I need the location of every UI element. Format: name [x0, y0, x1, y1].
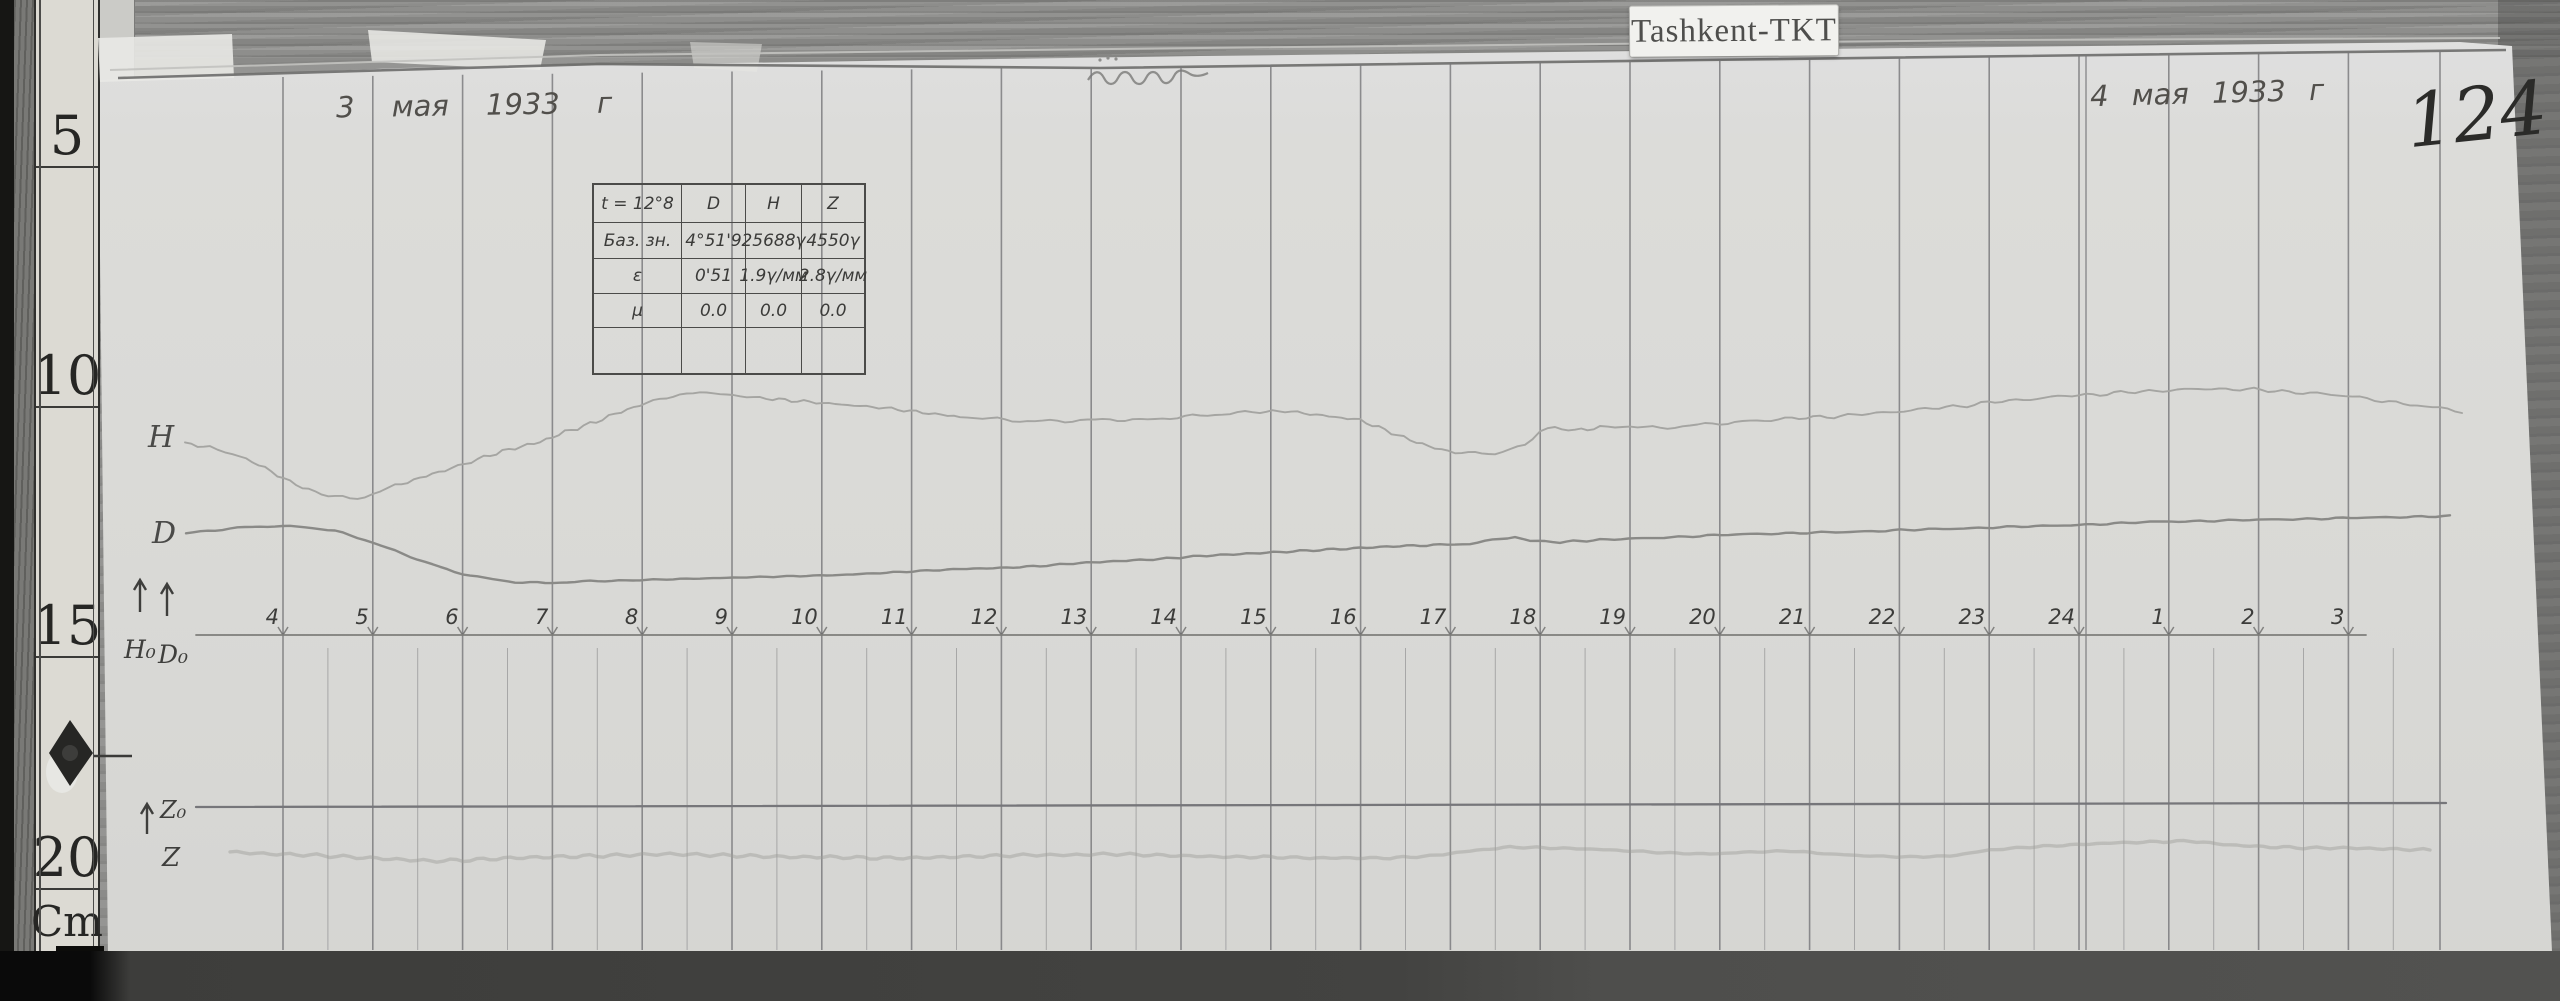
hour-label-18: 18 — [1509, 605, 1536, 629]
date-right: 4 мая 1933 г — [2090, 73, 2325, 114]
table-cell: 0.0 — [802, 294, 864, 328]
hour-label-5: 5 — [355, 605, 368, 629]
magnetogram-photo: 5 10 15 20 Cm Н D Н₀ D₀ Z₀ Z — [0, 0, 2560, 1001]
observation-table: t = 12°8DHZБаз. зн.4°51'925688γ4550γε0'5… — [592, 183, 866, 375]
table-cell: 1.9γ/мм — [746, 259, 802, 294]
hour-label-8: 8 — [625, 605, 638, 629]
up-arrow-z0 — [141, 804, 153, 834]
trace-z — [230, 840, 2430, 862]
table-cell: 0.0 — [746, 294, 802, 328]
hour-label-24: 24 — [2048, 605, 2075, 629]
tape-piece — [368, 30, 546, 70]
table-cell: 0'51 — [682, 259, 746, 294]
trace-h — [185, 388, 2462, 499]
table-cell: 0.0 — [682, 294, 746, 328]
hour-label-14: 14 — [1150, 605, 1177, 629]
trace-label-H: Н — [147, 420, 175, 455]
table-cell: D — [682, 185, 746, 223]
table-cell: μ — [594, 294, 682, 328]
table-cell: 25688γ — [746, 223, 802, 259]
station-label-text: Tashkent-TKT — [1631, 12, 1837, 50]
baseline-label-D0: D₀ — [157, 640, 188, 669]
hour-label-11: 11 — [881, 605, 908, 629]
table-cell — [746, 328, 802, 373]
baseline-label-Z0: Z₀ — [159, 796, 187, 824]
tape-pieces — [98, 30, 762, 82]
station-label: Tashkent-TKT — [1630, 5, 1838, 56]
baseline-label-H0: Н₀ — [123, 635, 156, 664]
hour-label-7: 7 — [535, 605, 549, 629]
date-left: 3 мая 1933 г — [336, 86, 613, 125]
hour-label-9: 9 — [715, 605, 728, 629]
hour-label-10: 10 — [791, 605, 818, 629]
hour-label-20: 20 — [1689, 605, 1716, 629]
hour-label-12: 12 — [971, 605, 998, 629]
hour-label-4: 4 — [266, 605, 279, 629]
pencil-scribble — [1088, 56, 1208, 84]
table-cell: t = 12°8 — [594, 185, 682, 223]
table-cell: Баз. зн. — [594, 223, 682, 259]
trace-label-Z: Z — [161, 843, 181, 873]
hour-label-1: 1 — [2151, 605, 2164, 629]
hour-label-22: 22 — [1869, 605, 1896, 629]
hour-label-23: 23 — [1958, 605, 1985, 629]
tape-piece — [690, 42, 762, 72]
hour-label-21: 21 — [1779, 605, 1806, 629]
hour-label-6: 6 — [445, 605, 458, 629]
up-arrows-h0d0 — [134, 580, 173, 616]
trace-label-D: D — [151, 516, 176, 551]
table-cell: ε — [594, 259, 682, 294]
hour-label-3: 3 — [2331, 605, 2344, 629]
hour-label-2: 2 — [2241, 605, 2254, 629]
table-cell — [682, 328, 746, 373]
table-cell: 2.8γ/мм — [802, 259, 864, 294]
hour-label-13: 13 — [1060, 605, 1087, 629]
page-number: 124 — [2402, 65, 2551, 165]
hour-label-19: 19 — [1599, 605, 1626, 629]
table-cell — [594, 328, 682, 373]
hour-label-17: 17 — [1420, 605, 1447, 629]
hour-label-16: 16 — [1330, 605, 1357, 629]
pin-marker — [46, 720, 132, 793]
hour-label-15: 15 — [1240, 605, 1267, 629]
chart-overlay: Н D Н₀ D₀ Z₀ Z 456789101 — [0, 0, 2560, 1001]
table-cell: H — [746, 185, 802, 223]
table-cell: Z — [802, 185, 864, 223]
trace-z0-baseline — [196, 803, 2446, 807]
table-cell: 4550γ — [802, 223, 864, 259]
trace-d — [186, 515, 2450, 583]
table-cell: 4°51'9 — [682, 223, 746, 259]
table-cell — [802, 328, 864, 373]
